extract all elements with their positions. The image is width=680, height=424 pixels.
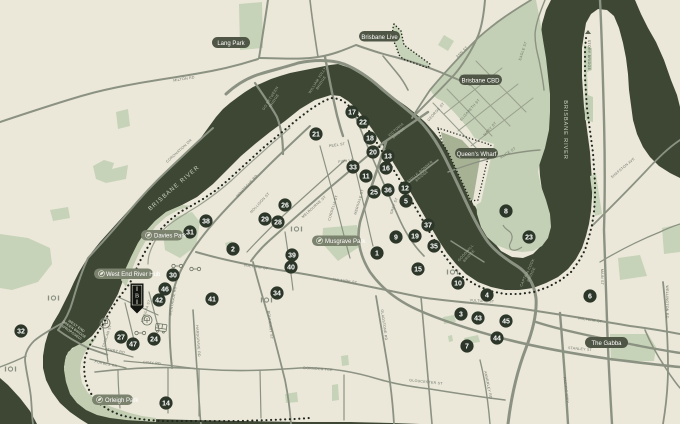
svg-text:B: B	[135, 294, 139, 300]
svg-text:17: 17	[348, 109, 356, 116]
svg-text:1: 1	[375, 250, 379, 257]
svg-text:9: 9	[394, 234, 398, 241]
svg-text:36: 36	[384, 187, 392, 194]
svg-text:46: 46	[161, 286, 169, 293]
svg-text:44: 44	[493, 335, 501, 342]
svg-text:11: 11	[362, 173, 370, 180]
svg-text:16: 16	[382, 165, 390, 172]
svg-text:MAIN ST: MAIN ST	[600, 269, 604, 286]
svg-text:10: 10	[454, 280, 462, 287]
svg-text:26: 26	[281, 202, 289, 209]
svg-text:28: 28	[274, 219, 282, 226]
svg-text:5: 5	[404, 198, 408, 205]
svg-text:29: 29	[261, 216, 269, 223]
svg-text:40: 40	[287, 264, 295, 271]
svg-text:19: 19	[411, 233, 419, 240]
svg-text:3: 3	[459, 311, 463, 318]
svg-text:West End River Hub: West End River Hub	[106, 272, 161, 278]
svg-text:2: 2	[231, 246, 235, 253]
svg-text:18: 18	[366, 135, 374, 142]
svg-text:8: 8	[504, 208, 508, 215]
svg-text:23: 23	[525, 234, 533, 241]
svg-text:39: 39	[288, 252, 296, 259]
svg-text:45: 45	[502, 318, 510, 325]
svg-text:6: 6	[588, 293, 592, 300]
svg-text:20: 20	[369, 149, 377, 156]
svg-text:22: 22	[359, 119, 367, 126]
svg-text:WELLINGTON RD: WELLINGTON RD	[665, 285, 669, 318]
svg-text:30: 30	[169, 272, 177, 279]
svg-text:24: 24	[150, 336, 158, 343]
svg-text:27: 27	[117, 334, 125, 341]
svg-text:33: 33	[349, 164, 357, 171]
svg-text:The Gabba: The Gabba	[591, 341, 622, 347]
svg-text:Orleigh Park: Orleigh Park	[105, 398, 139, 404]
svg-text:Brisbane Live: Brisbane Live	[361, 35, 398, 41]
svg-text:41: 41	[208, 296, 216, 303]
svg-text:34: 34	[273, 290, 281, 297]
svg-text:14: 14	[162, 400, 170, 407]
svg-text:42: 42	[155, 297, 163, 304]
svg-text:12: 12	[401, 185, 409, 192]
svg-text:4: 4	[485, 292, 489, 299]
svg-text:7: 7	[465, 343, 469, 350]
svg-text:STORY BRIDGE: STORY BRIDGE	[587, 40, 591, 71]
svg-text:32: 32	[17, 328, 25, 335]
svg-text:37: 37	[424, 222, 432, 229]
svg-text:Brisbane CBD: Brisbane CBD	[461, 79, 500, 85]
svg-text:47: 47	[129, 341, 137, 348]
svg-text:15: 15	[414, 266, 422, 273]
svg-text:BRISBANE RIVER: BRISBANE RIVER	[562, 100, 568, 160]
svg-text:Musgrave Park: Musgrave Park	[325, 239, 366, 245]
svg-text:Davies Park: Davies Park	[154, 234, 187, 240]
svg-text:43: 43	[474, 315, 482, 322]
svg-text:31: 31	[186, 229, 194, 236]
svg-text:35: 35	[430, 243, 438, 250]
svg-text:38: 38	[202, 218, 210, 225]
svg-text:21: 21	[312, 131, 320, 138]
svg-text:25: 25	[370, 189, 378, 196]
svg-text:13: 13	[384, 153, 392, 160]
svg-text:Lang Park: Lang Park	[217, 41, 245, 47]
svg-text:Queen's Wharf: Queen's Wharf	[457, 152, 497, 158]
